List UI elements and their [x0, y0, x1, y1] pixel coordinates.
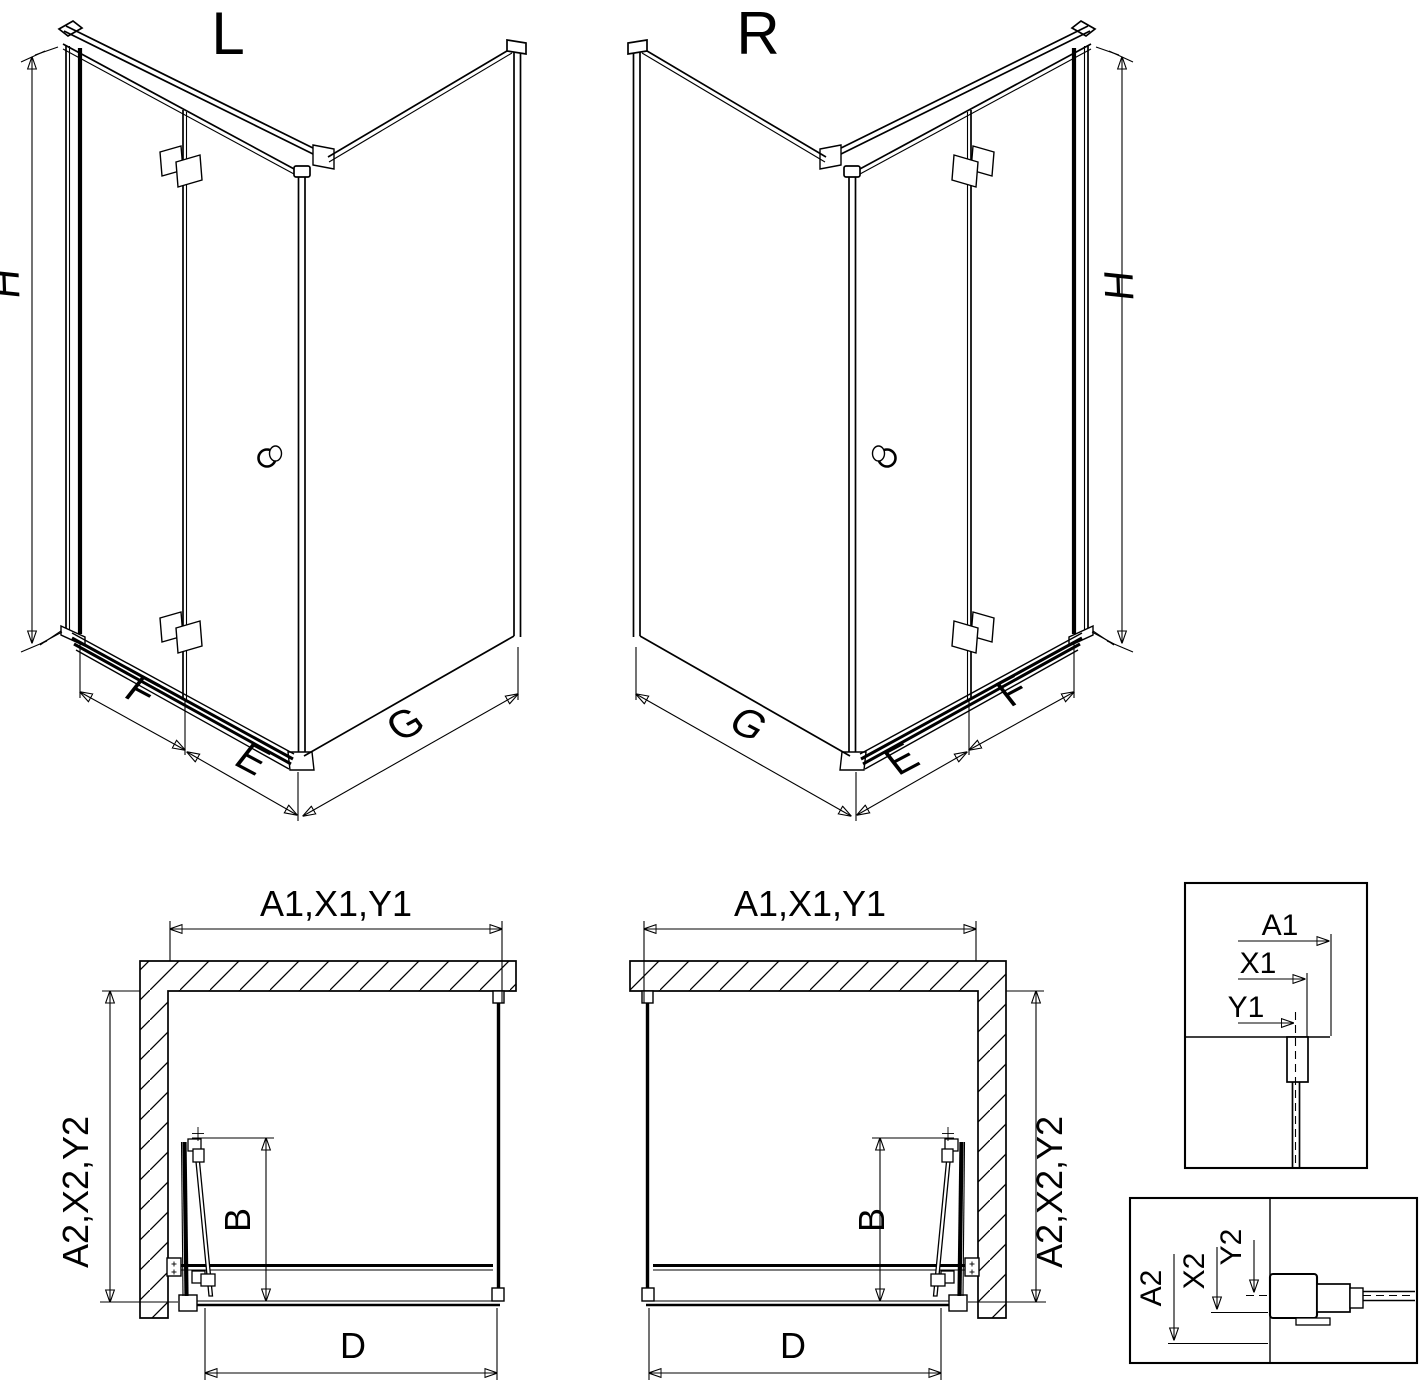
profile-step	[1296, 1318, 1330, 1325]
technical-drawing-page: A1 X1 Y1 A2 X2 Y2 L R H H F E G G E F A1…	[0, 0, 1426, 1397]
plan-right-depth-label: A2,X2,Y2	[1029, 1116, 1070, 1268]
bar-corner-bracket	[313, 145, 334, 169]
detail-bottom-label-y2: Y2	[1215, 1229, 1248, 1266]
plan-right-fold-label: B	[851, 1208, 892, 1232]
plan-left-fold-label: B	[217, 1208, 258, 1232]
detail-bottom-label-a2: A2	[1135, 1270, 1168, 1307]
detail-bottom-label-x2: X2	[1178, 1253, 1211, 1290]
dim-label-h-left: H	[0, 266, 29, 300]
corner-post-cap	[294, 166, 310, 177]
iso-view-left-geometry	[21, 21, 526, 821]
detail-top-label-y1: Y1	[1228, 991, 1265, 1024]
door-pivot-block	[193, 1149, 204, 1162]
clamp-profile	[1317, 1284, 1350, 1312]
detail-box-bottom: A2 X2 Y2	[1130, 1198, 1417, 1363]
threshold-foot	[179, 1295, 197, 1311]
dim-label-g-left: G	[377, 698, 434, 749]
detail-top-label-x1: X1	[1240, 947, 1277, 980]
variant-label-left: L	[211, 0, 244, 67]
plan-left-opening-label: D	[340, 1325, 366, 1366]
door-bottom-hinge	[201, 1274, 215, 1286]
dim-label-g-right: G	[720, 698, 777, 749]
panel-foot-profile	[492, 1288, 504, 1301]
wall-mount-profile	[1270, 1274, 1317, 1318]
detail-box-top: A1 X1 Y1	[1185, 883, 1367, 1168]
plan-left-width-label: A1,X1,Y1	[260, 883, 412, 924]
detail-top-label-a1: A1	[1262, 909, 1299, 942]
gasket-profile	[1350, 1288, 1363, 1308]
corner-post-foot	[288, 752, 314, 770]
door-knob-side	[270, 446, 282, 461]
side-panel-cap	[507, 40, 526, 54]
plan-right-opening-label: D	[780, 1325, 806, 1366]
variant-label-right: R	[736, 0, 779, 67]
plan-right-width-label: A1,X1,Y1	[734, 883, 886, 924]
iso-view-right-geometry	[628, 21, 1133, 821]
dim-label-h-right: H	[1096, 268, 1143, 302]
plan-left-depth-label: A2,X2,Y2	[55, 1116, 96, 1268]
glass-clamp-profile	[1287, 1037, 1308, 1082]
shower-enclosure-diagram: A1 X1 Y1 A2 X2 Y2 L R H H F E G G E F A1…	[0, 0, 1426, 1397]
